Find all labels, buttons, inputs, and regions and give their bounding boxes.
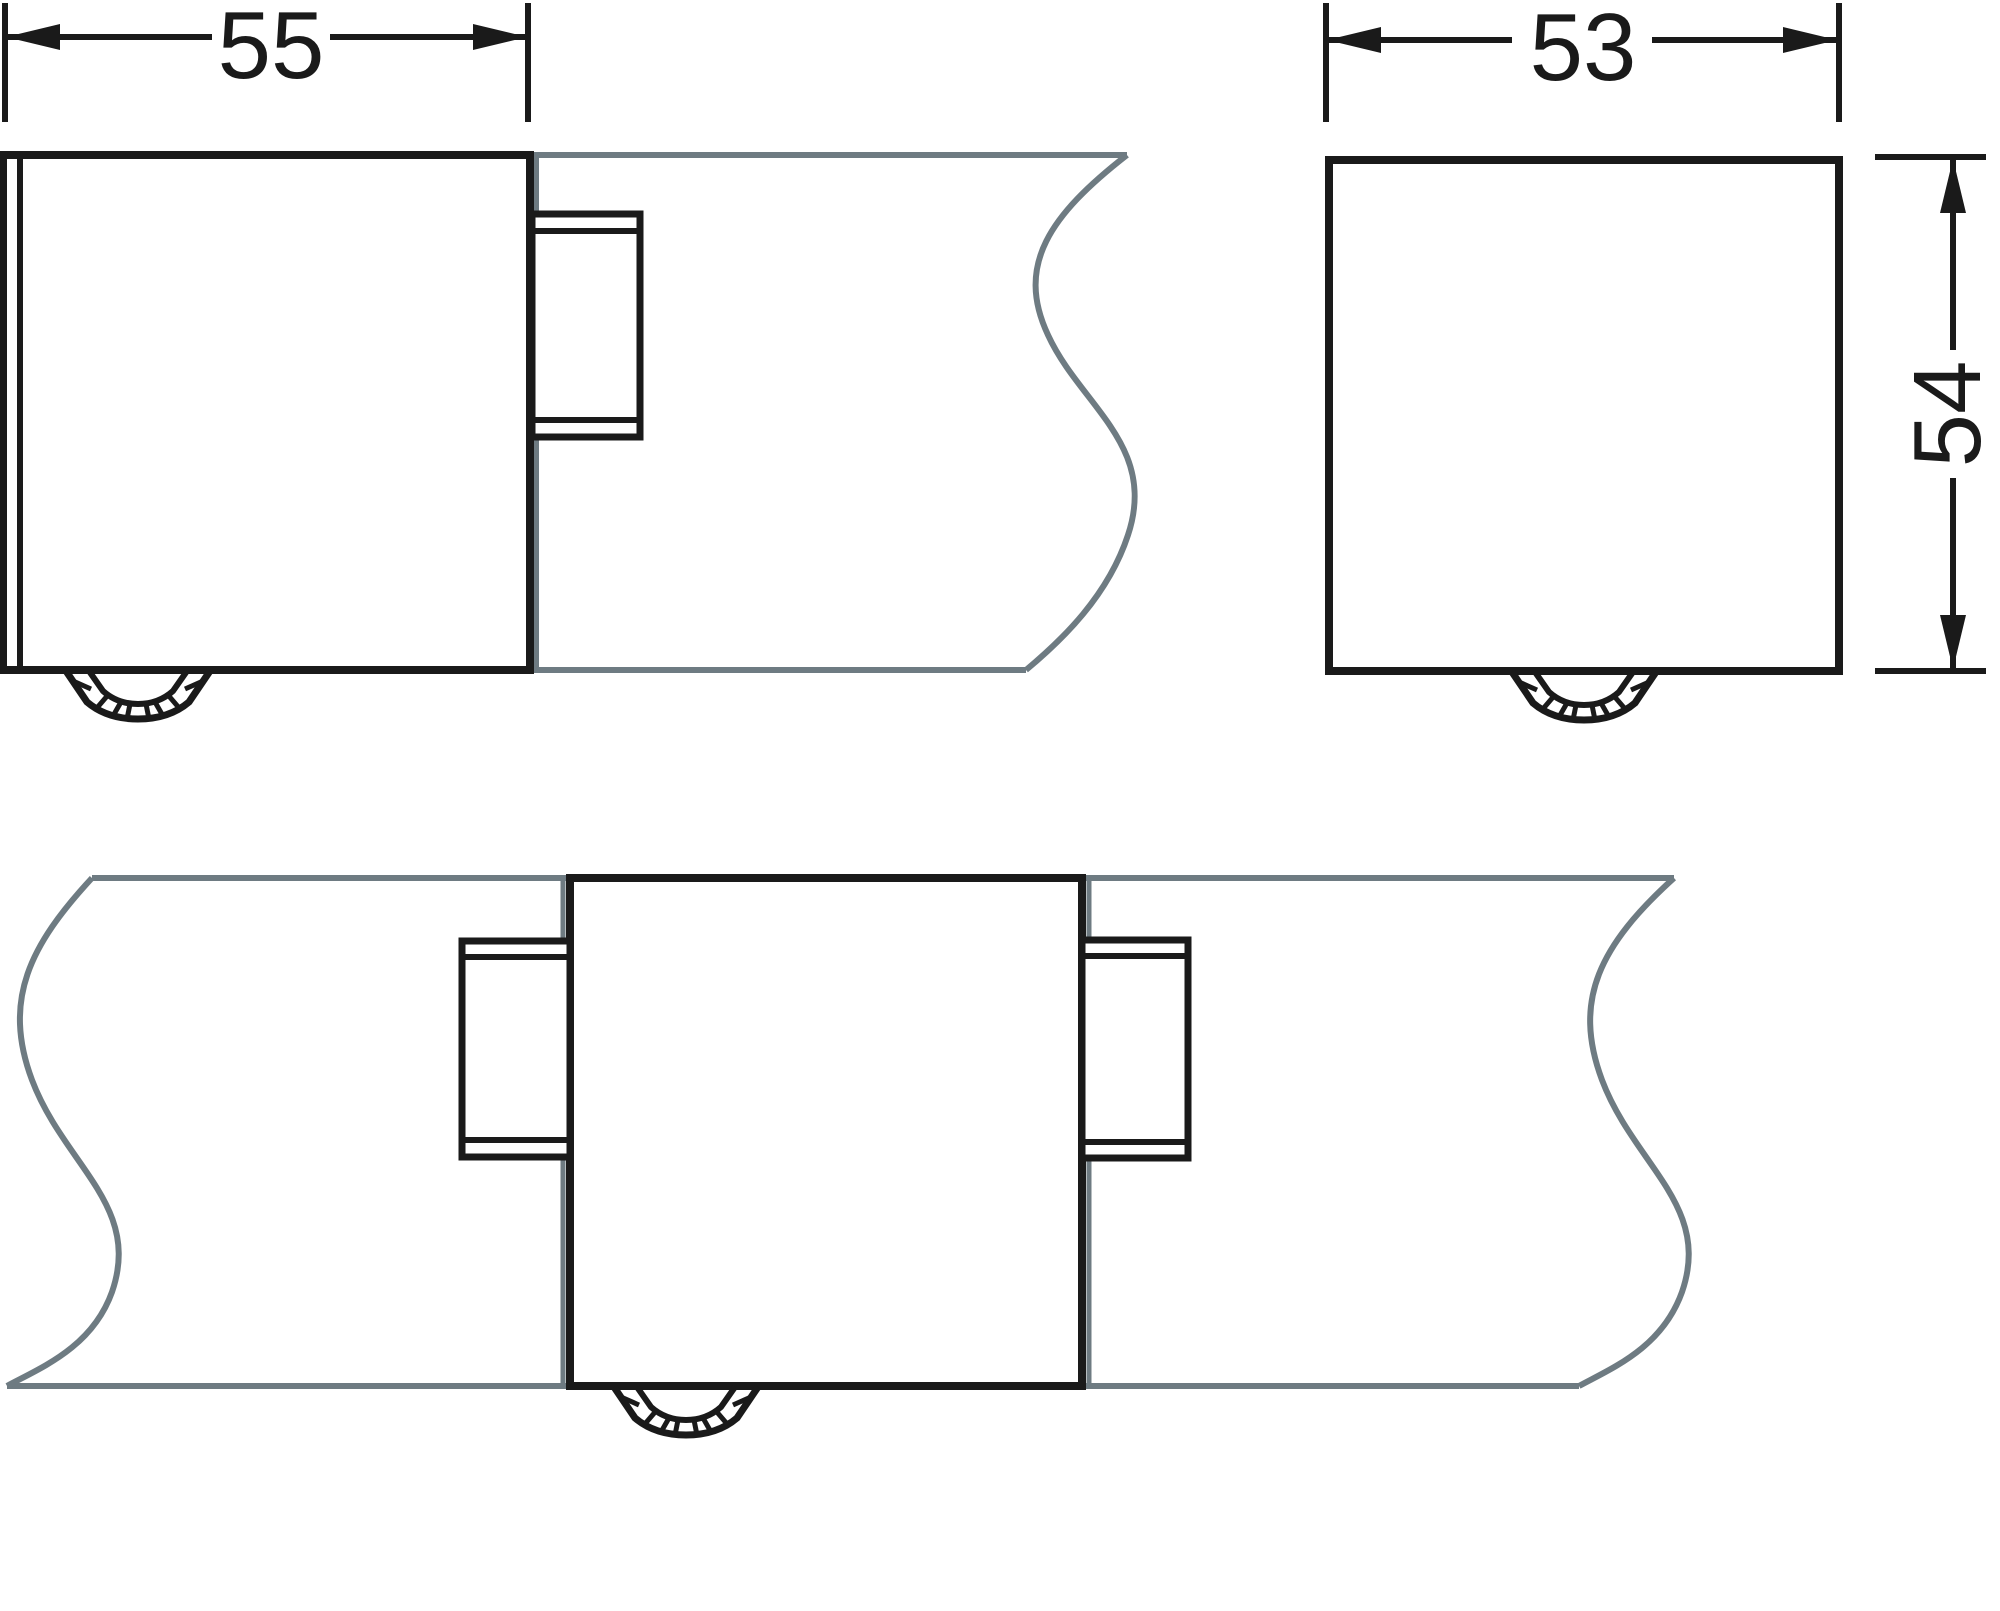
dimension-width-55: 55 [5, 0, 528, 122]
break-line-s-curve [1026, 155, 1135, 670]
latch-tab-right [1082, 940, 1188, 1158]
dimension-height-54: 54 [1875, 157, 2000, 671]
arrowhead-right-icon [473, 24, 527, 50]
break-line-s-curve-left [7, 878, 119, 1386]
end-cap-body [3, 155, 530, 670]
drawing-sheet: 55 53 54 [0, 0, 2000, 1611]
arrowhead-down-icon [1940, 615, 1966, 669]
latch-tab-outline [1082, 940, 1188, 1158]
technical-drawing-canvas: 55 53 54 [0, 0, 2000, 1611]
end-cap-front-view [1329, 160, 1839, 720]
coupler-front-view [7, 878, 1689, 1435]
arrowhead-left-icon [1327, 27, 1381, 53]
dimension-value-55: 55 [218, 0, 325, 99]
break-line-s-curve-right [1579, 878, 1689, 1386]
snap-clip [614, 1387, 758, 1435]
latch-tab-outline [462, 941, 570, 1157]
snap-clip [66, 671, 210, 719]
latch-tab-outline [532, 214, 640, 437]
dimension-value-54: 54 [1894, 361, 2000, 468]
latch-tab [532, 214, 640, 437]
arrowhead-right-icon [1783, 27, 1837, 53]
end-cap-side-view [3, 155, 1135, 719]
coupler-body [570, 878, 1082, 1386]
dimension-width-53: 53 [1326, 0, 1839, 122]
arrowhead-left-icon [6, 24, 60, 50]
end-cap-face [1329, 160, 1839, 671]
dimension-value-53: 53 [1530, 0, 1637, 101]
latch-tab-left [462, 941, 570, 1157]
snap-clip [1512, 672, 1656, 720]
arrowhead-up-icon [1940, 159, 1966, 213]
